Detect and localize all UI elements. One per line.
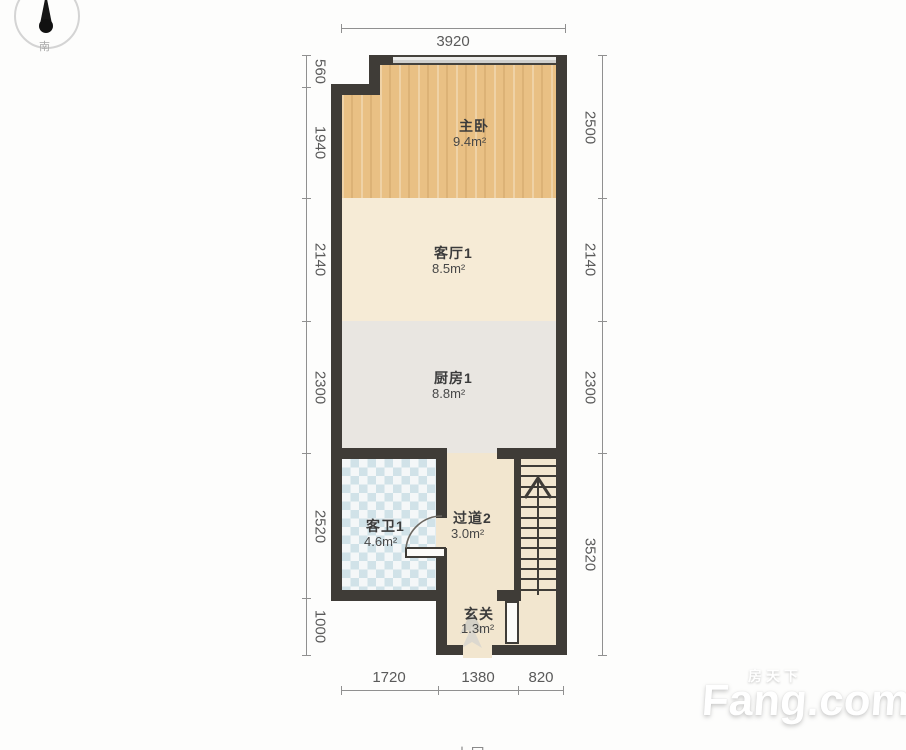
room-label-living: 客厅1 (434, 243, 473, 263)
dimension-label-right-2: 2140 (582, 230, 599, 290)
dim-tick (341, 24, 342, 33)
dim-tick (598, 55, 607, 56)
wall-top-left-corner (380, 55, 393, 65)
dim-tick (438, 686, 439, 695)
room-area-living: 8.5m² (432, 261, 465, 276)
staircase (521, 459, 556, 601)
floor-caption-clipped: 上层 (455, 743, 485, 750)
room-area-bathroom: 4.6m² (364, 534, 397, 549)
dim-tick (302, 87, 311, 88)
wall-unit-bottom-left (331, 590, 447, 601)
dim-tick (302, 598, 311, 599)
wall-notch-horizontal (331, 84, 380, 95)
wall-bathroom-top (342, 448, 447, 459)
fang-logo-en-text: Fang.com (700, 676, 906, 726)
window-top (393, 55, 556, 65)
fang-watermark-logo: 房天下 Fang.com (700, 664, 906, 736)
room-area-entry: 1.3m² (461, 621, 494, 636)
dimension-label-right-4: 3520 (582, 525, 599, 585)
room-label-hallway: 过道2 (453, 508, 492, 528)
wall-stairs-bottom-stub (497, 590, 521, 601)
dimension-label-bottom-2: 1380 (453, 669, 503, 686)
wall-stairs-top (497, 448, 556, 459)
dimension-label-top: 3920 (428, 33, 478, 50)
dimension-label-right-3: 2300 (582, 358, 599, 418)
dimension-label-bottom-1: 1720 (364, 669, 414, 686)
dimension-label-left-5: 2520 (312, 497, 329, 557)
dim-tick (565, 24, 566, 33)
dim-tick (598, 198, 607, 199)
wall-left (331, 84, 342, 601)
dimension-label-left-3: 2140 (312, 230, 329, 290)
bedroom-floor (380, 63, 556, 98)
room-area-kitchen: 8.8m² (432, 386, 465, 401)
dim-tick (302, 55, 311, 56)
dim-tick (598, 453, 607, 454)
dim-tick (518, 686, 519, 695)
dimension-label-bottom-3: 820 (516, 669, 566, 686)
wall-bottom-right (492, 645, 567, 655)
dimension-label-left-4: 2300 (312, 358, 329, 418)
compass-south-label: 南 (39, 38, 50, 54)
dimension-line-bottom (341, 690, 564, 691)
dim-tick (302, 198, 311, 199)
dimension-line-top (341, 28, 566, 29)
room-label-bathroom: 客卫1 (366, 516, 405, 536)
wall-bottom-entry-stub (436, 645, 463, 655)
room-area-bedroom: 9.4m² (453, 134, 486, 149)
entry-door-leaf (505, 601, 519, 644)
bedroom-floor-lower (342, 95, 556, 198)
dimension-label-right-1: 2500 (582, 98, 599, 158)
dimension-label-left-6: 1000 (312, 597, 329, 657)
room-label-kitchen: 厨房1 (434, 368, 473, 388)
bathroom-door-swing-icon (400, 510, 448, 554)
wall-stairs-left (514, 448, 521, 601)
dimension-line-left (306, 55, 307, 655)
wall-right (556, 55, 567, 655)
dim-tick (302, 453, 311, 454)
floorplan-canvas: 南 主卧 9.4m² 客厅 (0, 0, 906, 750)
dim-tick (598, 655, 607, 656)
room-area-hallway: 3.0m² (451, 526, 484, 541)
stairs-up-arrow-icon (521, 459, 556, 519)
dim-tick (302, 321, 311, 322)
dim-tick (341, 686, 342, 695)
dim-tick (302, 655, 311, 656)
dimension-line-right (602, 55, 603, 655)
room-label-bedroom: 主卧 (459, 116, 489, 136)
dim-tick (598, 321, 607, 322)
dim-tick (563, 686, 564, 695)
dimension-label-left-2: 1940 (312, 113, 329, 173)
compass-needle-icon (35, 0, 57, 36)
wall-bathroom-right-upper (436, 448, 447, 518)
dimension-label-left-1: 560 (312, 42, 329, 102)
